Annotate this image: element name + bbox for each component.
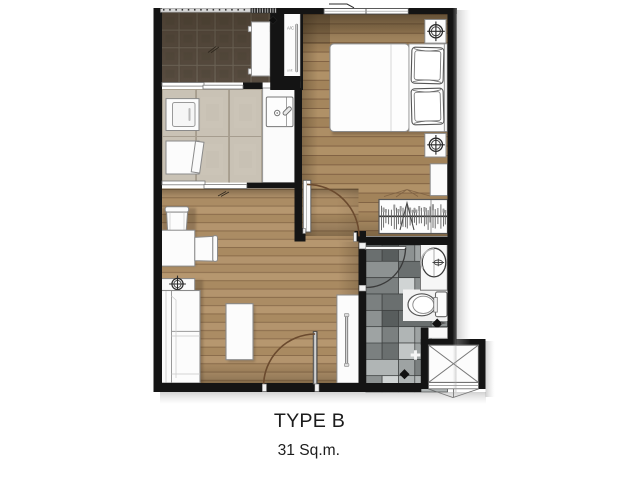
svg-text:31 Sq.m.: 31 Sq.m.	[278, 442, 340, 459]
svg-text:A/C: A/C	[287, 26, 294, 31]
svg-text:TYPE B: TYPE B	[274, 410, 345, 432]
svg-text:unit: unit	[287, 69, 293, 73]
